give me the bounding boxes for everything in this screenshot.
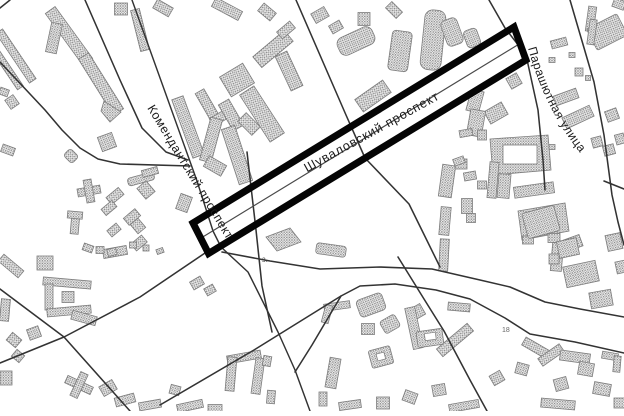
svg-text:з.: з. — [262, 255, 268, 264]
svg-text:18: 18 — [502, 327, 510, 334]
